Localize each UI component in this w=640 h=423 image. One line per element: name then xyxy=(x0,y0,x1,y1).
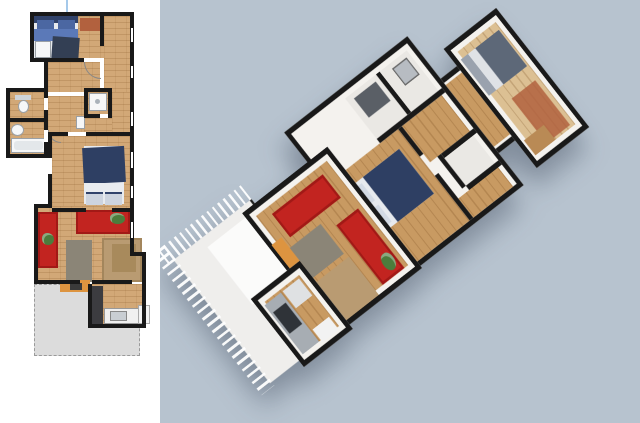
room-closet-strip-floor xyxy=(104,16,130,94)
3d-building-group xyxy=(160,0,613,415)
bed-middle-pillow xyxy=(105,192,122,205)
wall-segment xyxy=(108,88,112,118)
coffee-table xyxy=(66,240,92,282)
wall-segment xyxy=(88,284,92,328)
door-gap xyxy=(48,158,52,174)
toilet-bowl xyxy=(18,100,29,113)
wall-segment xyxy=(112,208,130,212)
window-gap xyxy=(131,222,133,238)
door-gap xyxy=(44,130,48,142)
wall-segment xyxy=(34,204,50,208)
wall-segment xyxy=(52,208,86,212)
bathroom-sink xyxy=(11,124,24,136)
room-corridor-right-floor xyxy=(112,92,130,132)
bed-middle-blanket xyxy=(82,146,126,184)
bed-middle-pillow xyxy=(86,192,103,205)
floorplan-app-canvas xyxy=(0,0,640,423)
wall-segment xyxy=(6,88,48,92)
wall-segment xyxy=(88,324,146,328)
plant-on-sofa xyxy=(110,213,125,224)
desk-chair-slot xyxy=(70,283,82,290)
plant-on-sofa xyxy=(42,233,54,245)
room-corridor-under-shower-floor xyxy=(84,118,112,132)
wall-segment xyxy=(6,88,10,158)
wall-segment xyxy=(8,118,44,122)
wall-segment xyxy=(142,256,146,328)
bed-top-footbox xyxy=(35,41,51,58)
door-gap xyxy=(44,98,48,110)
wall-segment xyxy=(86,132,130,136)
floor-plan-2d-panel[interactable] xyxy=(0,0,160,423)
bed-top-pillow xyxy=(58,20,75,29)
shower-drain xyxy=(95,99,100,104)
kitchen-sink xyxy=(110,311,127,321)
wall-segment xyxy=(30,58,84,62)
window-gap xyxy=(131,66,133,78)
aerial-view-3d-panel[interactable] xyxy=(160,0,640,423)
wall-segment xyxy=(34,280,80,284)
wall-segment xyxy=(100,16,104,46)
window-gap xyxy=(131,112,133,126)
wall-segment xyxy=(30,12,34,62)
bed-top-pillow xyxy=(37,20,54,29)
wall-segment xyxy=(84,114,100,118)
bathtub-inner xyxy=(14,141,43,150)
wall-segment xyxy=(130,12,134,94)
wall-segment xyxy=(34,204,38,284)
window-gap xyxy=(131,152,133,168)
window-gap xyxy=(131,186,133,198)
window-gap xyxy=(131,28,133,42)
wall-segment xyxy=(30,12,134,16)
bed-middle-sheet xyxy=(84,183,124,192)
wall-segment xyxy=(92,280,132,284)
